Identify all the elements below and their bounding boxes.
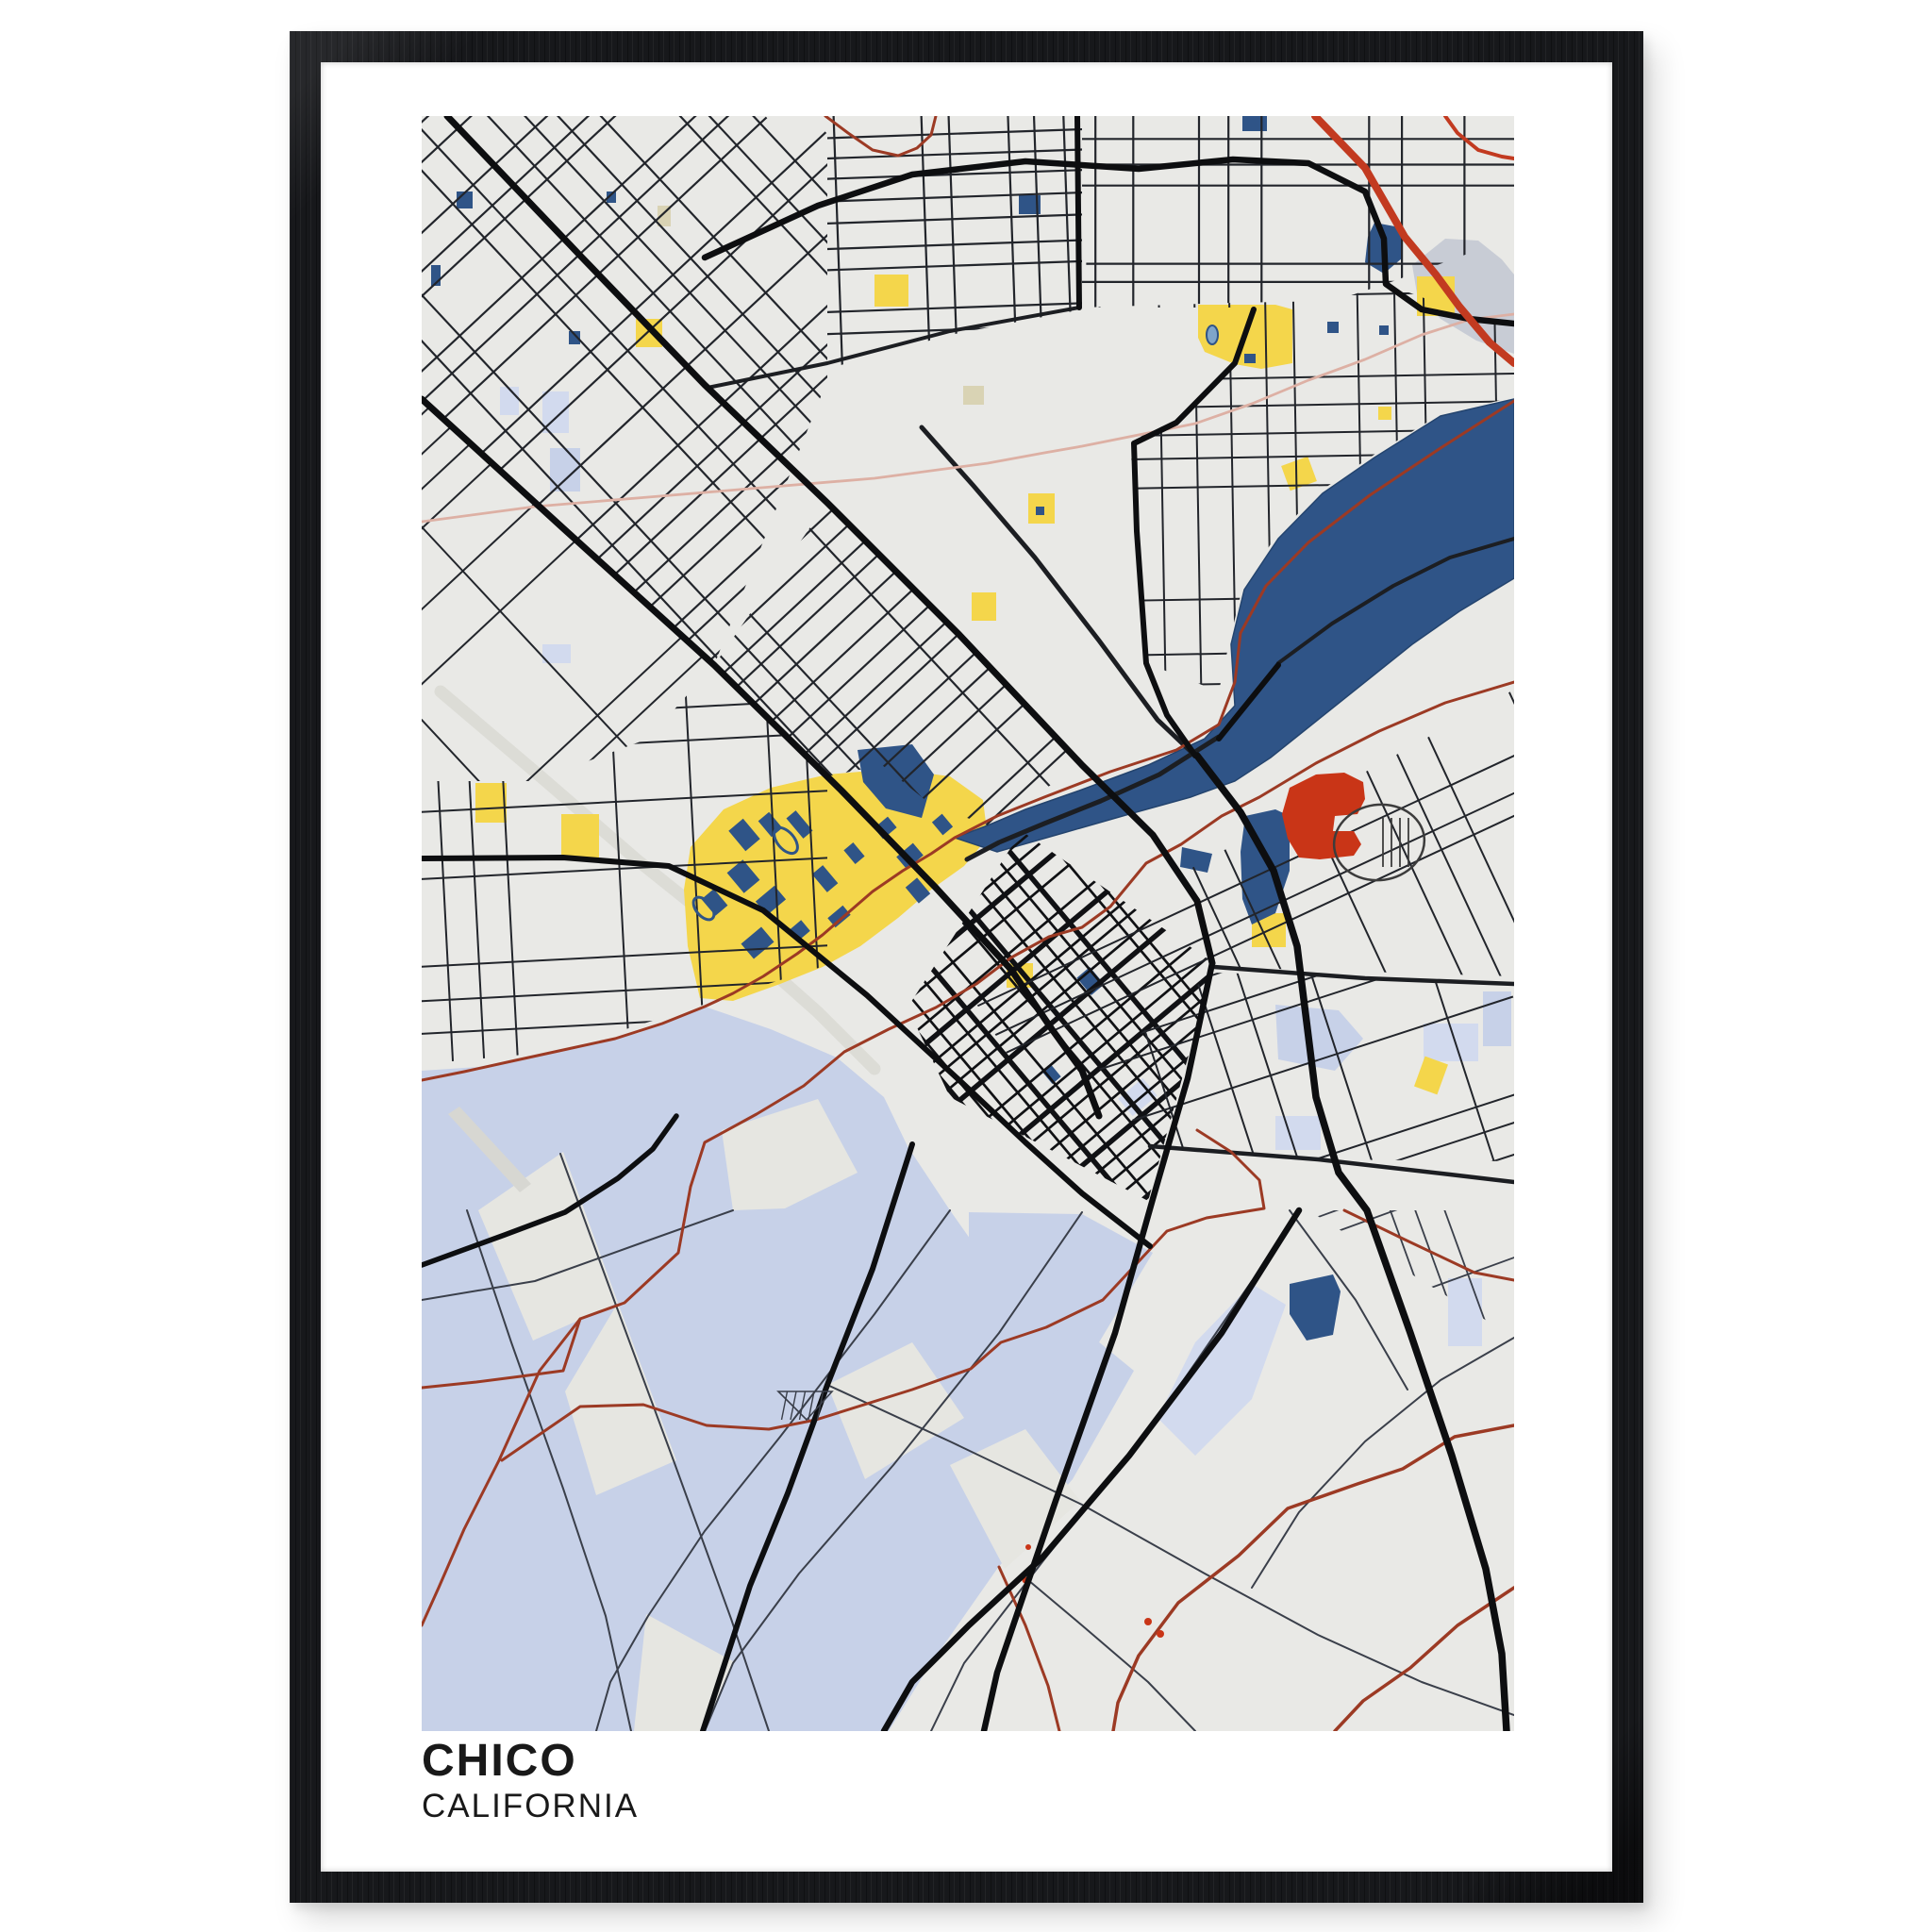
picture-frame: CHICO CALIFORNIA	[290, 31, 1643, 1903]
city-map-print	[422, 116, 1514, 1731]
poster-subtitle: CALIFORNIA	[422, 1790, 639, 1823]
city-map	[422, 116, 1514, 1731]
poster-photo: CHICO CALIFORNIA	[0, 0, 1932, 1932]
mat-board: CHICO CALIFORNIA	[321, 62, 1612, 1872]
print-sheet: CHICO CALIFORNIA	[321, 62, 1612, 1872]
title-block: CHICO CALIFORNIA	[422, 1739, 639, 1823]
poster-title: CHICO	[422, 1739, 639, 1784]
